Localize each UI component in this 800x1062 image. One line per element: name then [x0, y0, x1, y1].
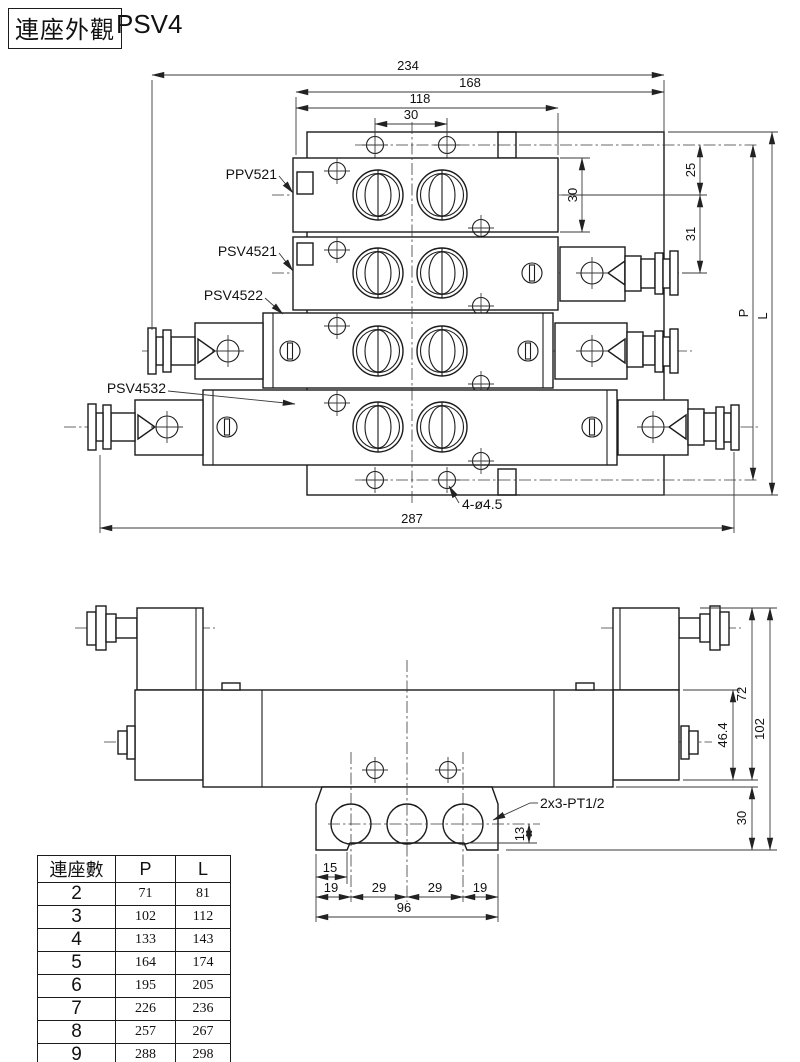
port-callout: 2x3-PT1/2: [540, 795, 605, 811]
part-label-psv4532: PSV4532: [107, 380, 166, 396]
table-header-row: 連座數 P L: [38, 856, 231, 883]
table-cell: 112: [176, 906, 231, 929]
dim-234: 234: [397, 58, 419, 73]
table-cell: 298: [176, 1044, 231, 1062]
table-cell: 5: [38, 952, 116, 975]
dim-31: 31: [683, 227, 698, 241]
header-L: L: [176, 856, 231, 883]
table-cell: 195: [116, 975, 176, 998]
table-cell: 81: [176, 883, 231, 906]
table-row: 2 71 81: [38, 883, 231, 906]
table-cell: 288: [116, 1044, 176, 1062]
table-cell: 143: [176, 929, 231, 952]
header-stations: 連座數: [38, 856, 116, 883]
dim-102: 102: [752, 718, 767, 740]
hole-callout: 4-ø4.5: [462, 496, 503, 512]
table-cell: 267: [176, 1021, 231, 1044]
table-cell: 71: [116, 883, 176, 906]
table-cell: 6: [38, 975, 116, 998]
dim-13: 13: [512, 827, 527, 841]
dim-96: 96: [397, 900, 411, 915]
dim-15: 15: [323, 860, 337, 875]
dim-118: 118: [410, 91, 431, 106]
front-right-solenoid: [613, 606, 729, 690]
part-label-psv4521: PSV4521: [218, 243, 277, 259]
dim-19a: 19: [324, 880, 338, 895]
part-label-psv4522: PSV4522: [204, 287, 263, 303]
table-cell: 2: [38, 883, 116, 906]
table-cell: 133: [116, 929, 176, 952]
table-cell: 7: [38, 998, 116, 1021]
table-cell: 9: [38, 1044, 116, 1062]
table-row: 6 195 205: [38, 975, 231, 998]
table-cell: 174: [176, 952, 231, 975]
size-table: 連座數 P L 2 71 81 3 102 112 4 133 143 5 16…: [37, 855, 231, 1062]
catalog-page: 連座外觀 PSV4: [0, 0, 800, 1062]
dim-29b: 29: [428, 880, 442, 895]
table-row: 5 164 174: [38, 952, 231, 975]
dim-168: 168: [459, 75, 481, 90]
table-cell: 102: [116, 906, 176, 929]
part-label-ppv521: PPV521: [226, 166, 278, 182]
dim-30-top: 30: [404, 107, 418, 122]
table-row: 4 133 143: [38, 929, 231, 952]
dim-29a: 29: [372, 880, 386, 895]
dim-25: 25: [683, 163, 698, 177]
table-row: 8 257 267: [38, 1021, 231, 1044]
table-cell: 257: [116, 1021, 176, 1044]
table-cell: 226: [116, 998, 176, 1021]
table-row: 9 288 298: [38, 1044, 231, 1062]
dim-46-4: 46.4: [715, 722, 730, 747]
table-cell: 236: [176, 998, 231, 1021]
valve-row-ppv521: [272, 158, 575, 241]
table-cell: 164: [116, 952, 176, 975]
table-cell: 3: [38, 906, 116, 929]
dim-P: P: [736, 309, 751, 318]
front-valve-body: [118, 683, 698, 787]
dim-287: 287: [401, 511, 423, 526]
table-cell: 8: [38, 1021, 116, 1044]
dim-L: L: [755, 312, 770, 319]
front-left-solenoid: [87, 606, 203, 690]
header-P: P: [116, 856, 176, 883]
dim-30-front: 30: [734, 811, 749, 825]
dim-72: 72: [734, 687, 749, 701]
top-view: 234 168 118 30 30 25 31: [64, 58, 778, 533]
table-row: 7 226 236: [38, 998, 231, 1021]
table-row: 3 102 112: [38, 906, 231, 929]
table-cell: 4: [38, 929, 116, 952]
table-cell: 205: [176, 975, 231, 998]
dim-19b: 19: [473, 880, 487, 895]
